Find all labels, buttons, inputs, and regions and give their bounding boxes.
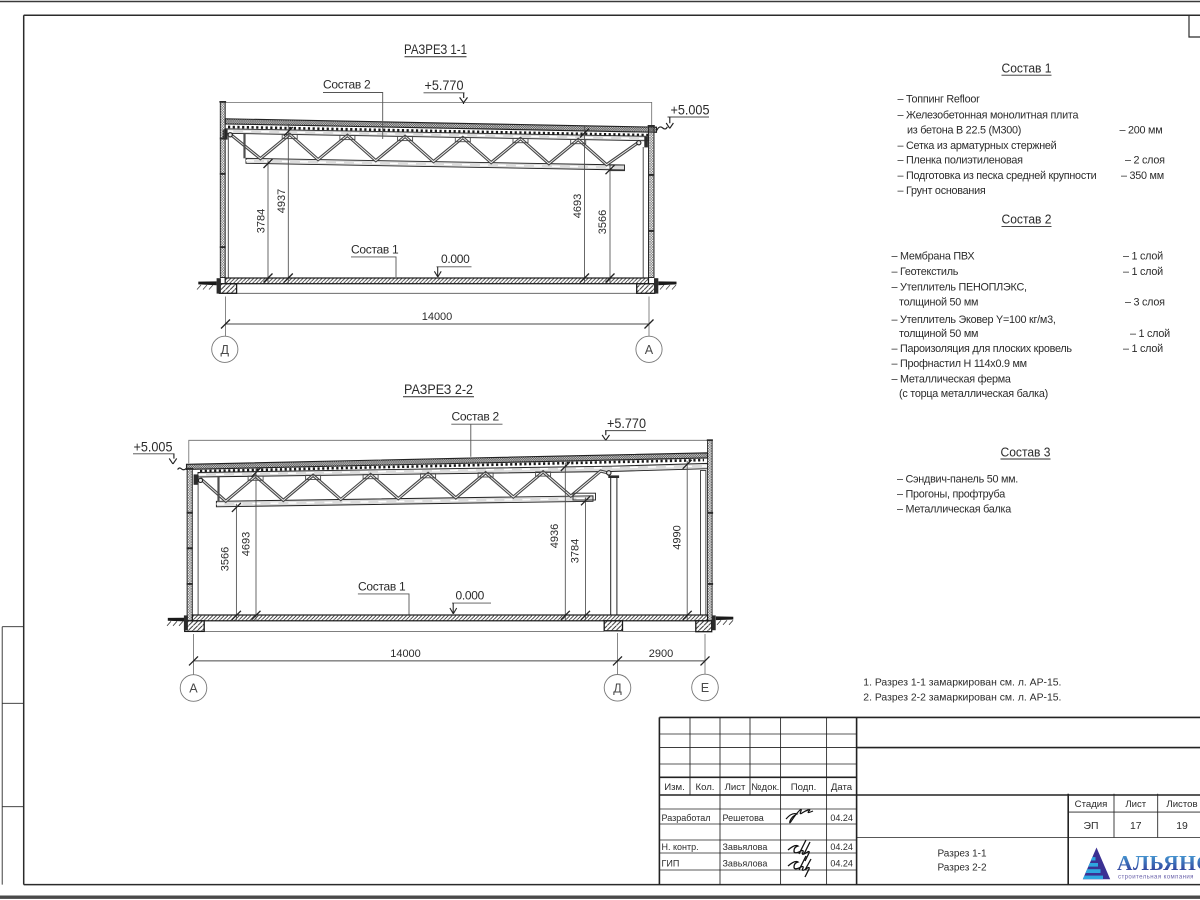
svg-text:– Профнастил Н 114х0.9 мм: – Профнастил Н 114х0.9 мм [892,358,1027,370]
svg-text:ГИП: ГИП [662,858,680,868]
svg-text:19: 19 [1176,821,1188,832]
svg-text:2. Разрез 2-2 замаркирован см.: 2. Разрез 2-2 замаркирован см. л. АР-15. [863,692,1061,703]
svg-text:4937: 4937 [276,189,288,213]
svg-text:– Мембрана ПВХ: – Мембрана ПВХ [892,251,975,263]
svg-text:+5.770: +5.770 [425,78,464,93]
svg-text:14000: 14000 [422,311,453,323]
svg-text:– 1 слой: – 1 слой [1123,343,1163,355]
svg-text:– Грунт основания: – Грунт основания [898,185,986,197]
svg-text:– Пароизоляция для плоских кр: – Пароизоляция для плоских кровель [892,343,1073,355]
svg-text:Состав 2: Состав 2 [1002,212,1052,227]
svg-text:№док.: №док. [751,782,779,793]
svg-text:Состав 1: Состав 1 [1002,61,1052,76]
svg-text:Состав 2: Состав 2 [323,77,371,91]
svg-text:– 3 слоя: – 3 слоя [1125,297,1165,309]
svg-text:Д: Д [221,343,230,357]
svg-text:А: А [645,343,654,357]
svg-text:04.24: 04.24 [830,858,853,868]
svg-text:Листов: Листов [1166,799,1197,810]
svg-text:Разрез 1-1: Разрез 1-1 [937,849,987,860]
svg-text:4990: 4990 [671,525,683,549]
svg-text:РАЗРЕЗ 1-1: РАЗРЕЗ 1-1 [404,42,467,58]
svg-text:– 200 мм: – 200 мм [1120,125,1163,137]
svg-text:14000: 14000 [390,648,421,660]
svg-text:Состав 1: Состав 1 [358,579,406,593]
svg-text:Решетова: Решетова [723,813,764,823]
svg-text:– Сэндвич-панель 50 мм.: – Сэндвич-панель 50 мм. [897,474,1018,486]
svg-text:из бетона В 22.5 (М300): из бетона В 22.5 (М300) [907,125,1021,137]
svg-text:строительная компания: строительная компания [1118,873,1194,880]
svg-text:– Прогоны, профтруба: – Прогоны, профтруба [897,489,1005,501]
svg-text:ЭП: ЭП [1084,821,1099,832]
svg-text:Подп.: Подп. [791,782,816,793]
svg-text:04.24: 04.24 [830,813,853,823]
svg-text:(с торца металлическая балка): (с торца металлическая балка) [899,388,1048,400]
svg-text:А: А [189,682,198,696]
svg-text:Изм.: Изм. [664,782,685,793]
svg-text:3566: 3566 [597,210,609,234]
svg-text:Завьялова: Завьялова [723,858,768,868]
svg-text:Дата: Дата [831,782,853,793]
svg-text:4693: 4693 [572,194,584,218]
svg-text:– Пленка полиэтиленовая: – Пленка полиэтиленовая [898,155,1024,167]
svg-text:Н. контр.: Н. контр. [662,842,699,852]
svg-text:– 1 слой: – 1 слой [1130,328,1170,340]
svg-text:Разрез 2-2: Разрез 2-2 [937,863,987,874]
svg-text:РАЗРЕЗ 2-2: РАЗРЕЗ 2-2 [404,382,473,398]
svg-text:– Утеплитель Эковер Y=100 кг/: – Утеплитель Эковер Y=100 кг/м3, [892,314,1056,326]
svg-text:– 1 слой: – 1 слой [1123,251,1163,263]
svg-text:04.24: 04.24 [830,842,853,852]
svg-text:Д: Д [613,682,622,696]
svg-text:0.000: 0.000 [441,252,470,266]
svg-text:1. Разрез 1-1 замаркирован см.: 1. Разрез 1-1 замаркирован см. л. АР-15. [863,678,1061,689]
svg-text:Лист: Лист [725,782,746,793]
svg-text:– Металлическая балка: – Металлическая балка [897,504,1011,516]
svg-text:2900: 2900 [649,648,673,660]
svg-text:Состав 3: Состав 3 [1001,444,1051,459]
svg-text:+5.005: +5.005 [134,439,173,454]
svg-text:– 2 слоя: – 2 слоя [1125,155,1165,167]
svg-text:толщиной 50 мм: толщиной 50 мм [899,297,978,309]
svg-text:– Подготовка из песка средней: – Подготовка из песка средней крупности [898,170,1097,182]
svg-text:Завьялова: Завьялова [723,842,768,852]
svg-text:+5.005: +5.005 [671,102,710,117]
svg-text:17: 17 [1130,821,1142,832]
svg-text:Состав 1: Состав 1 [351,242,399,256]
svg-text:– Геотекстиль: – Геотекстиль [892,266,959,278]
svg-text:4693: 4693 [240,532,252,556]
svg-text:АЛЬЯНС: АЛЬЯНС [1117,851,1200,875]
svg-text:– Утеплитель ПЕНОПЛЭКС,: – Утеплитель ПЕНОПЛЭКС, [892,281,1027,293]
svg-text:– 1 слой: – 1 слой [1123,266,1163,278]
svg-text:– Железобетонная монолитная: – Железобетонная монолитная плита [898,109,1079,121]
svg-text:Разработал: Разработал [662,813,711,823]
svg-text:+5.770: +5.770 [607,416,646,431]
svg-text:Стадия: Стадия [1075,799,1108,810]
svg-text:3566: 3566 [219,547,231,571]
svg-text:Е: Е [701,681,709,695]
svg-text:– Сетка из арматурных стержне: – Сетка из арматурных стержней [898,140,1057,152]
svg-text:Лист: Лист [1125,799,1146,810]
svg-text:0.000: 0.000 [456,589,485,603]
svg-text:3784: 3784 [255,209,267,233]
svg-text:Состав 2: Состав 2 [452,410,500,424]
svg-text:Кол.: Кол. [696,782,715,793]
svg-text:– 350 мм: – 350 мм [1121,170,1164,182]
svg-text:3784: 3784 [570,539,582,563]
svg-text:– Топпинг Refloor: – Топпинг Refloor [898,94,981,106]
svg-text:толщиной 50 мм: толщиной 50 мм [899,328,978,340]
svg-text:4936: 4936 [549,524,561,548]
svg-text:– Металлическая ферма: – Металлическая ферма [892,373,1011,385]
